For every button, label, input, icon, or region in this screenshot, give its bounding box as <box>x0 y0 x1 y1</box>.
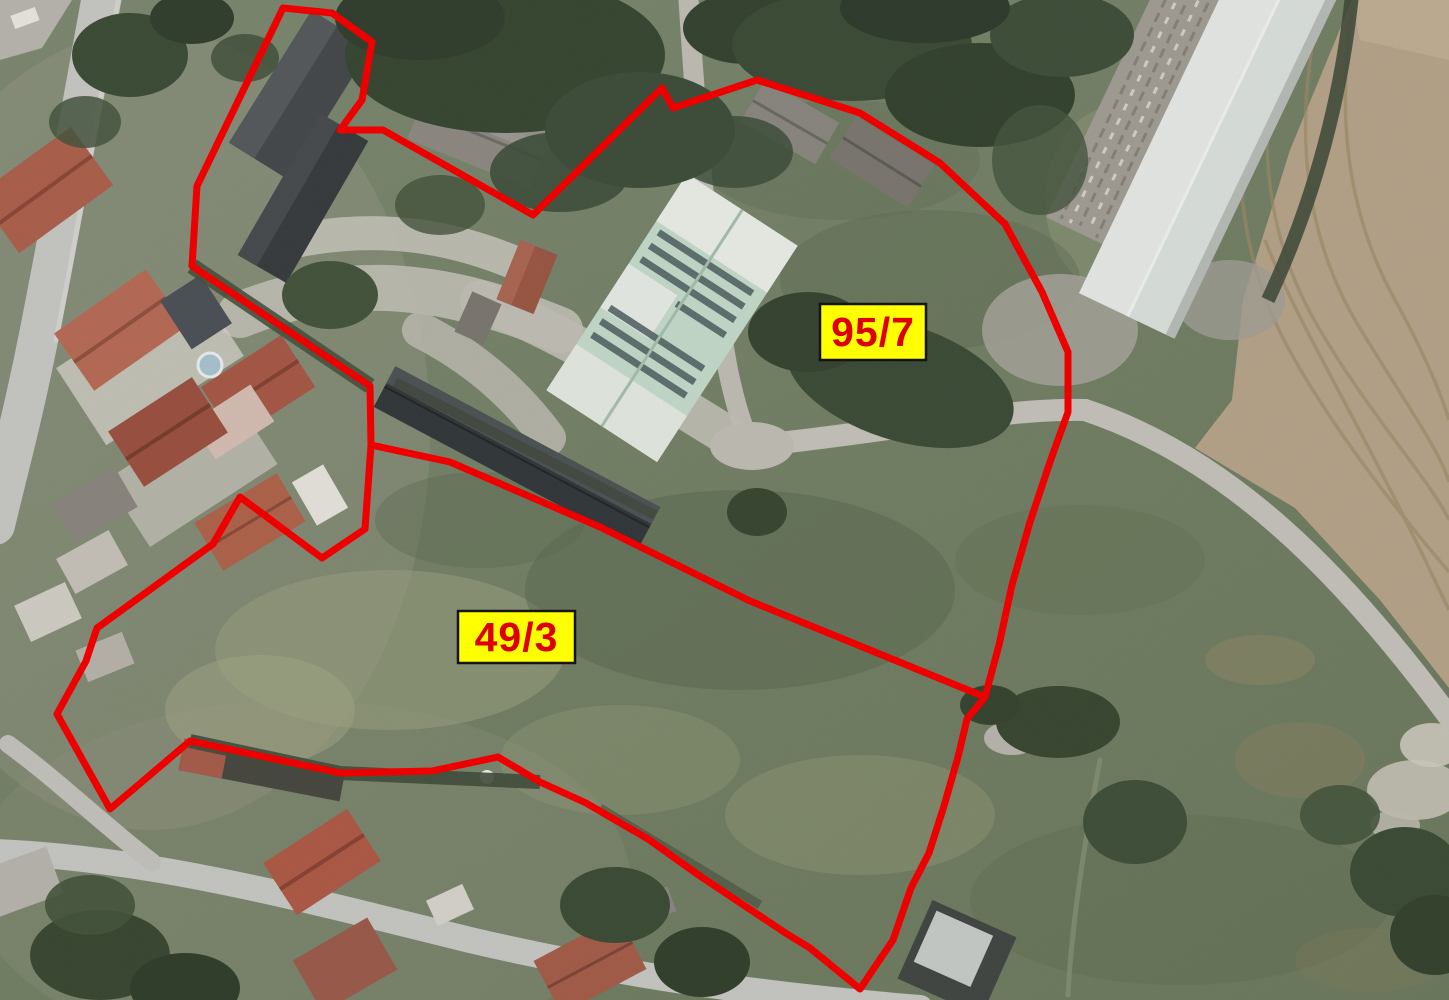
parcel-label-95-7: 95/7 <box>820 304 926 360</box>
parcel-label-text: 95/7 <box>831 309 915 355</box>
aerial-map: 95/749/3 <box>0 0 1449 1000</box>
aerial-photo-canvas: 95/749/3 <box>0 0 1449 1000</box>
parcel-label-text: 49/3 <box>475 614 559 660</box>
parcel-label-49-3: 49/3 <box>458 611 575 663</box>
